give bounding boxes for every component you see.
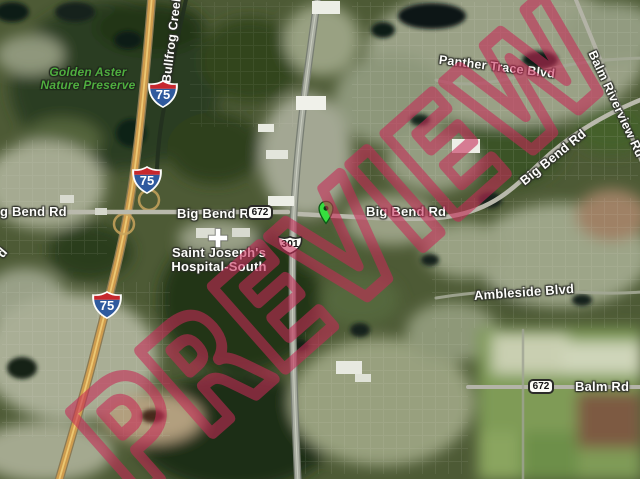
sr-672-number: 672 <box>533 382 550 392</box>
road-label-big-bend-center: Big Bend Rd <box>177 207 257 220</box>
hospital-label-line1: Saint Joseph's <box>148 246 290 260</box>
interstate-75-shield-middle: 75 <box>132 166 162 194</box>
map-pin[interactable] <box>317 197 335 232</box>
interstate-75-number: 75 <box>132 174 162 188</box>
sr-672-shield-center: 672 <box>247 205 273 220</box>
interstate-75-shield-south: 75 <box>92 291 122 319</box>
park-label-golden-aster: Golden Aster Nature Preserve <box>28 66 148 91</box>
interstate-75-number: 75 <box>148 88 178 102</box>
road-label-big-bend-east: Big Bend Rd <box>366 205 446 218</box>
interstate-75-number: 75 <box>92 299 122 313</box>
interstate-75-shield-north: 75 <box>148 80 178 108</box>
road-label-big-bend-left: g Bend Rd <box>0 205 67 218</box>
hospital-label: Saint Joseph's Hospital-South <box>148 246 290 273</box>
park-label-line2: Nature Preserve <box>28 79 148 92</box>
us-301-number: 301 <box>275 239 305 250</box>
road-label-balm: Balm Rd <box>575 380 629 393</box>
sr-672-number: 672 <box>252 208 269 218</box>
hospital-label-line2: Hospital-South <box>148 260 290 274</box>
park-label-line1: Golden Aster <box>28 66 148 79</box>
us-301-shield: 301 <box>275 233 305 255</box>
sr-672-shield-south: 672 <box>528 379 554 394</box>
map-viewport[interactable]: Golden Aster Nature Preserve Bullfrog Cr… <box>0 0 640 479</box>
